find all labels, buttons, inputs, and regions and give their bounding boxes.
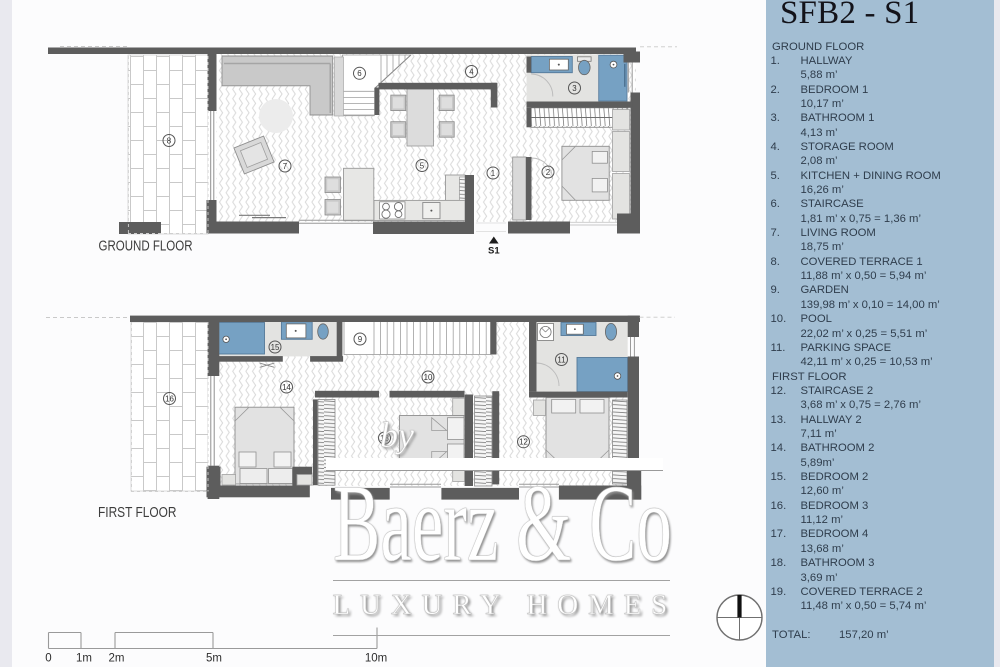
svg-text:FIRST FLOOR: FIRST FLOOR (98, 505, 177, 521)
svg-text:6: 6 (357, 69, 362, 78)
svg-text:3: 3 (572, 84, 577, 93)
svg-text:4: 4 (469, 67, 474, 76)
svg-text:7: 7 (283, 162, 287, 171)
svg-text:1: 1 (491, 169, 495, 178)
svg-text:8: 8 (167, 136, 172, 145)
svg-text:0: 0 (45, 653, 51, 665)
svg-text:5: 5 (420, 161, 425, 170)
svg-text:10m: 10m (365, 653, 387, 665)
svg-text:GROUND FLOOR: GROUND FLOOR (99, 239, 193, 255)
svg-text:S1: S1 (488, 246, 500, 257)
svg-text:1m: 1m (76, 653, 92, 665)
svg-text:5m: 5m (206, 653, 222, 665)
svg-text:13: 13 (380, 434, 389, 443)
svg-text:2m: 2m (109, 653, 125, 665)
svg-text:9: 9 (358, 335, 363, 344)
svg-text:12: 12 (519, 438, 528, 447)
svg-text:14: 14 (282, 383, 291, 392)
svg-text:16: 16 (165, 394, 174, 403)
svg-text:11: 11 (557, 355, 565, 364)
svg-text:2: 2 (546, 168, 550, 177)
svg-text:10: 10 (424, 373, 433, 382)
svg-text:15: 15 (271, 343, 280, 352)
